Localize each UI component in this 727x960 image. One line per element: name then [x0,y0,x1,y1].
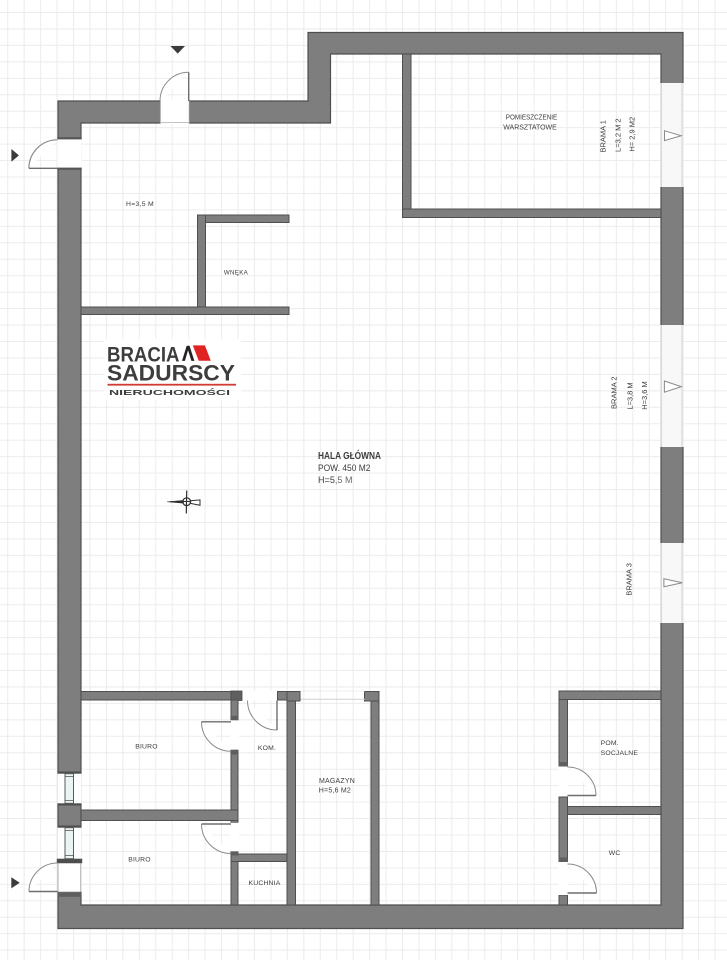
svg-text:MAGAZYN: MAGAZYN [319,778,355,785]
svg-text:H= 2,9 M2: H= 2,9 M2 [628,117,637,152]
svg-text:BRAMA 2: BRAMA 2 [610,376,619,409]
svg-text:POM.: POM. [601,740,619,747]
svg-text:BIURO: BIURO [128,857,151,864]
svg-text:H=5,5 M: H=5,5 M [318,475,353,486]
svg-text:KUCHNIA: KUCHNIA [249,880,281,887]
svg-text:H=3,6 M: H=3,6 M [640,381,649,410]
svg-text:SOCJALNE: SOCJALNE [601,750,639,757]
svg-text:WC: WC [609,850,621,857]
svg-text:BRAMA 3: BRAMA 3 [625,563,634,596]
svg-text:POW. 450 M2: POW. 450 M2 [318,463,371,474]
svg-text:L=3,8 M: L=3,8 M [626,382,635,409]
svg-text:POMIESZCZENIE: POMIESZCZENIE [506,115,558,122]
svg-text:SADURSCY: SADURSCY [107,361,235,386]
svg-text:NIERUCHOMOŚCI: NIERUCHOMOŚCI [109,388,230,397]
svg-text:WNĘKA: WNĘKA [224,269,249,276]
svg-text:WARSZTATOWE: WARSZTATOWE [503,125,557,132]
svg-text:BRAMA 1: BRAMA 1 [599,120,608,153]
svg-text:H=3,5 M: H=3,5 M [126,201,154,208]
svg-text:L=3,2 M 2: L=3,2 M 2 [614,118,623,152]
svg-text:BIURO: BIURO [135,744,158,751]
svg-text:HALA GŁÓWNA: HALA GŁÓWNA [318,449,381,462]
svg-text:H=5,6 M2: H=5,6 M2 [319,788,351,795]
svg-text:KOM.: KOM. [258,745,276,752]
